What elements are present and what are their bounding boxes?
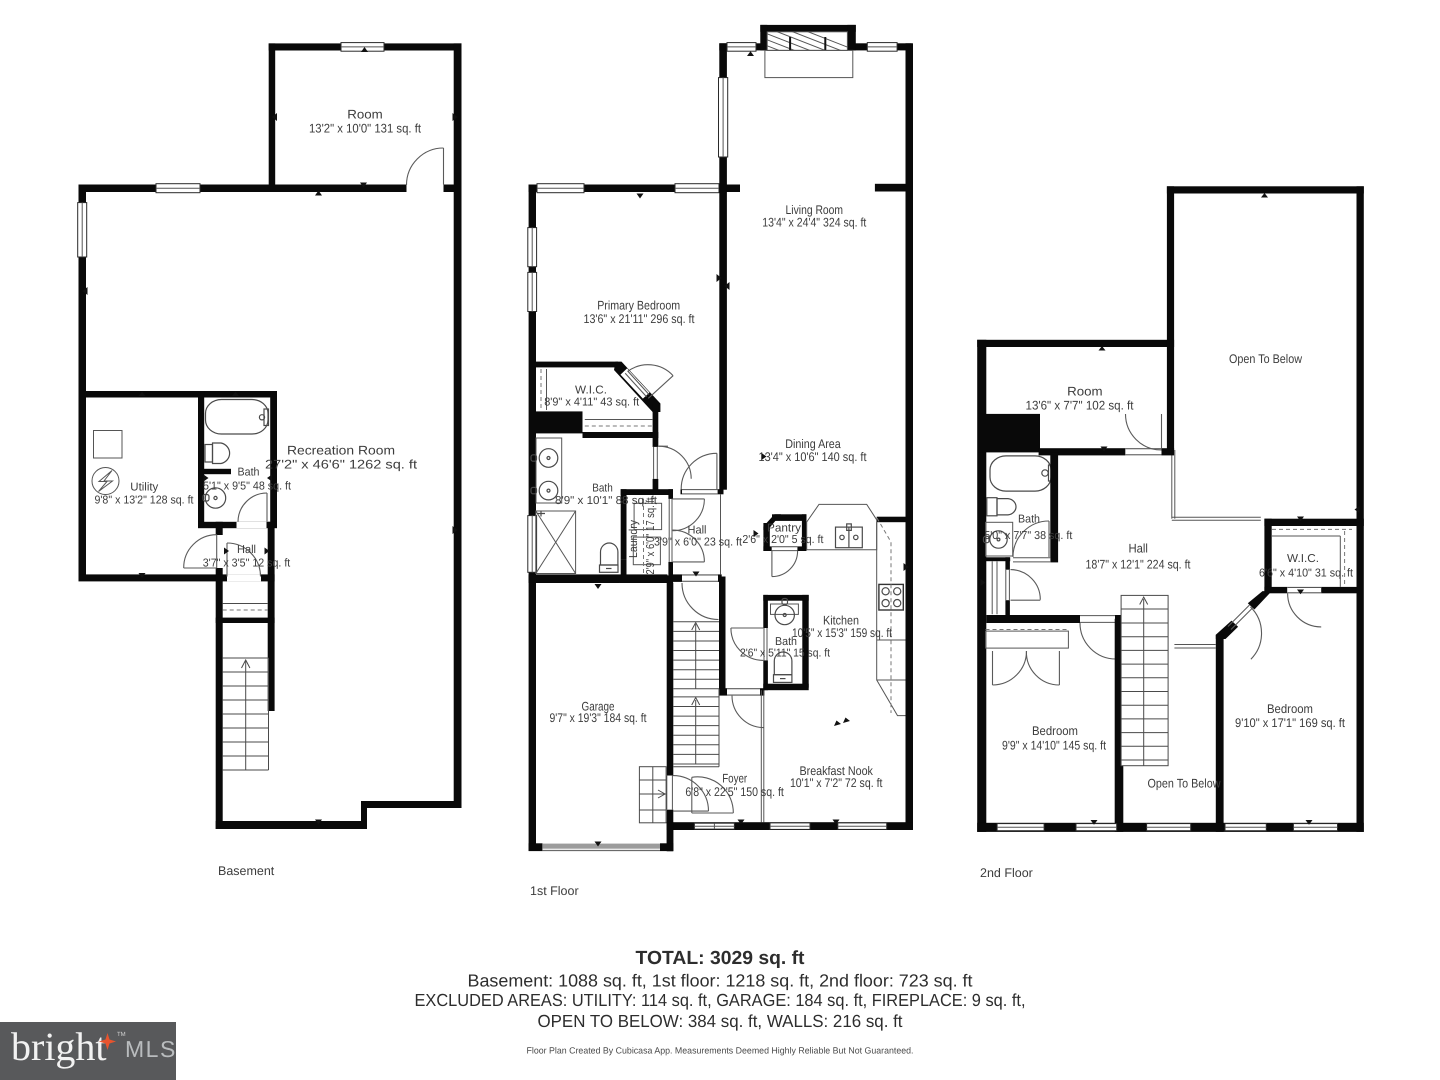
svg-text:Laundry: Laundry [628, 520, 640, 558]
svg-text:9'7" x 19'3" 184 sq. ft: 9'7" x 19'3" 184 sq. ft [550, 711, 647, 725]
svg-text:Bath: Bath [775, 636, 797, 648]
svg-text:5'0" x 7'7" 38 sq. ft: 5'0" x 7'7" 38 sq. ft [984, 530, 1073, 542]
svg-text:Floor Plan Created By Cubicasa: Floor Plan Created By Cubicasa App. Meas… [527, 1046, 914, 1056]
svg-text:8'9" x 10'1" 88 sq. ft: 8'9" x 10'1" 88 sq. ft [555, 495, 658, 507]
svg-text:9'9" x 14'10" 145 sq. ft: 9'9" x 14'10" 145 sq. ft [1002, 739, 1106, 753]
svg-text:Pantry: Pantry [767, 523, 801, 535]
svg-text:8'9" x 4'11" 43 sq. ft: 8'9" x 4'11" 43 sq. ft [544, 397, 640, 409]
svg-text:Hall: Hall [237, 544, 256, 556]
svg-text:Foyer: Foyer [722, 772, 747, 786]
svg-text:10'1" x 7'2" 72 sq. ft: 10'1" x 7'2" 72 sq. ft [790, 776, 883, 790]
svg-text:Hall: Hall [688, 525, 707, 537]
svg-text:6'8" x 22'5" 150 sq. ft: 6'8" x 22'5" 150 sq. ft [685, 785, 784, 799]
svg-text:Bath: Bath [238, 467, 260, 479]
svg-text:Bedroom: Bedroom [1032, 724, 1078, 738]
svg-text:Room: Room [347, 108, 383, 122]
svg-text:Room: Room [1067, 385, 1103, 399]
svg-text:13'6" x 21'11" 296 sq. ft: 13'6" x 21'11" 296 sq. ft [584, 312, 695, 326]
svg-text:27'2" x 46'6" 1262 sq. ft: 27'2" x 46'6" 1262 sq. ft [265, 458, 418, 472]
svg-text:1st Floor: 1st Floor [530, 884, 579, 898]
svg-text:13'6" x 7'7" 102 sq. ft: 13'6" x 7'7" 102 sq. ft [1026, 399, 1134, 413]
svg-text:MLS: MLS [125, 1036, 177, 1062]
svg-text:Open To Below: Open To Below [1229, 352, 1303, 366]
svg-text:W.I.C.: W.I.C. [1287, 553, 1319, 565]
svg-text:bright: bright [11, 1024, 107, 1069]
svg-text:9'10" x 17'1" 169 sq. ft: 9'10" x 17'1" 169 sq. ft [1235, 716, 1345, 730]
svg-text:Hall: Hall [1128, 542, 1148, 556]
svg-text:Basement: Basement [218, 864, 275, 878]
svg-text:13'4" x 10'6" 140 sq. ft: 13'4" x 10'6" 140 sq. ft [759, 450, 867, 464]
svg-text:OPEN TO BELOW: 384 sq. ft, WAL: OPEN TO BELOW: 384 sq. ft, WALLS: 216 sq… [538, 1011, 903, 1031]
svg-text:18'7" x 12'1" 224 sq. ft: 18'7" x 12'1" 224 sq. ft [1086, 558, 1191, 572]
svg-text:3'7" x 3'5" 12 sq. ft: 3'7" x 3'5" 12 sq. ft [203, 558, 291, 570]
svg-text:3'9" x 6'0" 23 sq. ft: 3'9" x 6'0" 23 sq. ft [654, 537, 743, 549]
svg-text:9'8" x 13'2" 128 sq. ft: 9'8" x 13'2" 128 sq. ft [95, 495, 195, 507]
svg-text:Bath: Bath [592, 483, 613, 495]
svg-text:Recreation Room: Recreation Room [287, 444, 395, 458]
svg-text:13'4" x 24'4" 324 sq. ft: 13'4" x 24'4" 324 sq. ft [762, 215, 866, 229]
svg-text:Bath: Bath [1018, 514, 1040, 526]
svg-text:6'6" x 4'10" 31 sq. ft: 6'6" x 4'10" 31 sq. ft [1259, 568, 1354, 580]
svg-text:Basement: 1088 sq. ft, 1st flo: Basement: 1088 sq. ft, 1st floor: 1218 s… [468, 971, 973, 991]
svg-text:Bedroom: Bedroom [1267, 702, 1313, 716]
svg-text:TOTAL: 3029 sq. ft: TOTAL: 3029 sq. ft [636, 948, 806, 969]
svg-text:2'6" x 5'11" 15 sq. ft: 2'6" x 5'11" 15 sq. ft [740, 648, 831, 660]
svg-text:10'5" x 15'3" 159 sq. ft: 10'5" x 15'3" 159 sq. ft [792, 626, 892, 640]
svg-text:Open To Below: Open To Below [1148, 777, 1222, 791]
svg-text:2nd Floor: 2nd Floor [980, 866, 1033, 880]
svg-text:Utility: Utility [130, 482, 158, 494]
svg-text:Primary Bedroom: Primary Bedroom [597, 299, 680, 313]
svg-text:5'1" x 9'5" 48 sq. ft: 5'1" x 9'5" 48 sq. ft [203, 481, 292, 493]
svg-text:W.I.C.: W.I.C. [575, 385, 607, 397]
svg-text:EXCLUDED AREAS: UTILITY: 114 s: EXCLUDED AREAS: UTILITY: 114 sq. ft, GAR… [415, 990, 1026, 1010]
svg-text:13'2" x 10'0" 131 sq. ft: 13'2" x 10'0" 131 sq. ft [309, 122, 421, 136]
